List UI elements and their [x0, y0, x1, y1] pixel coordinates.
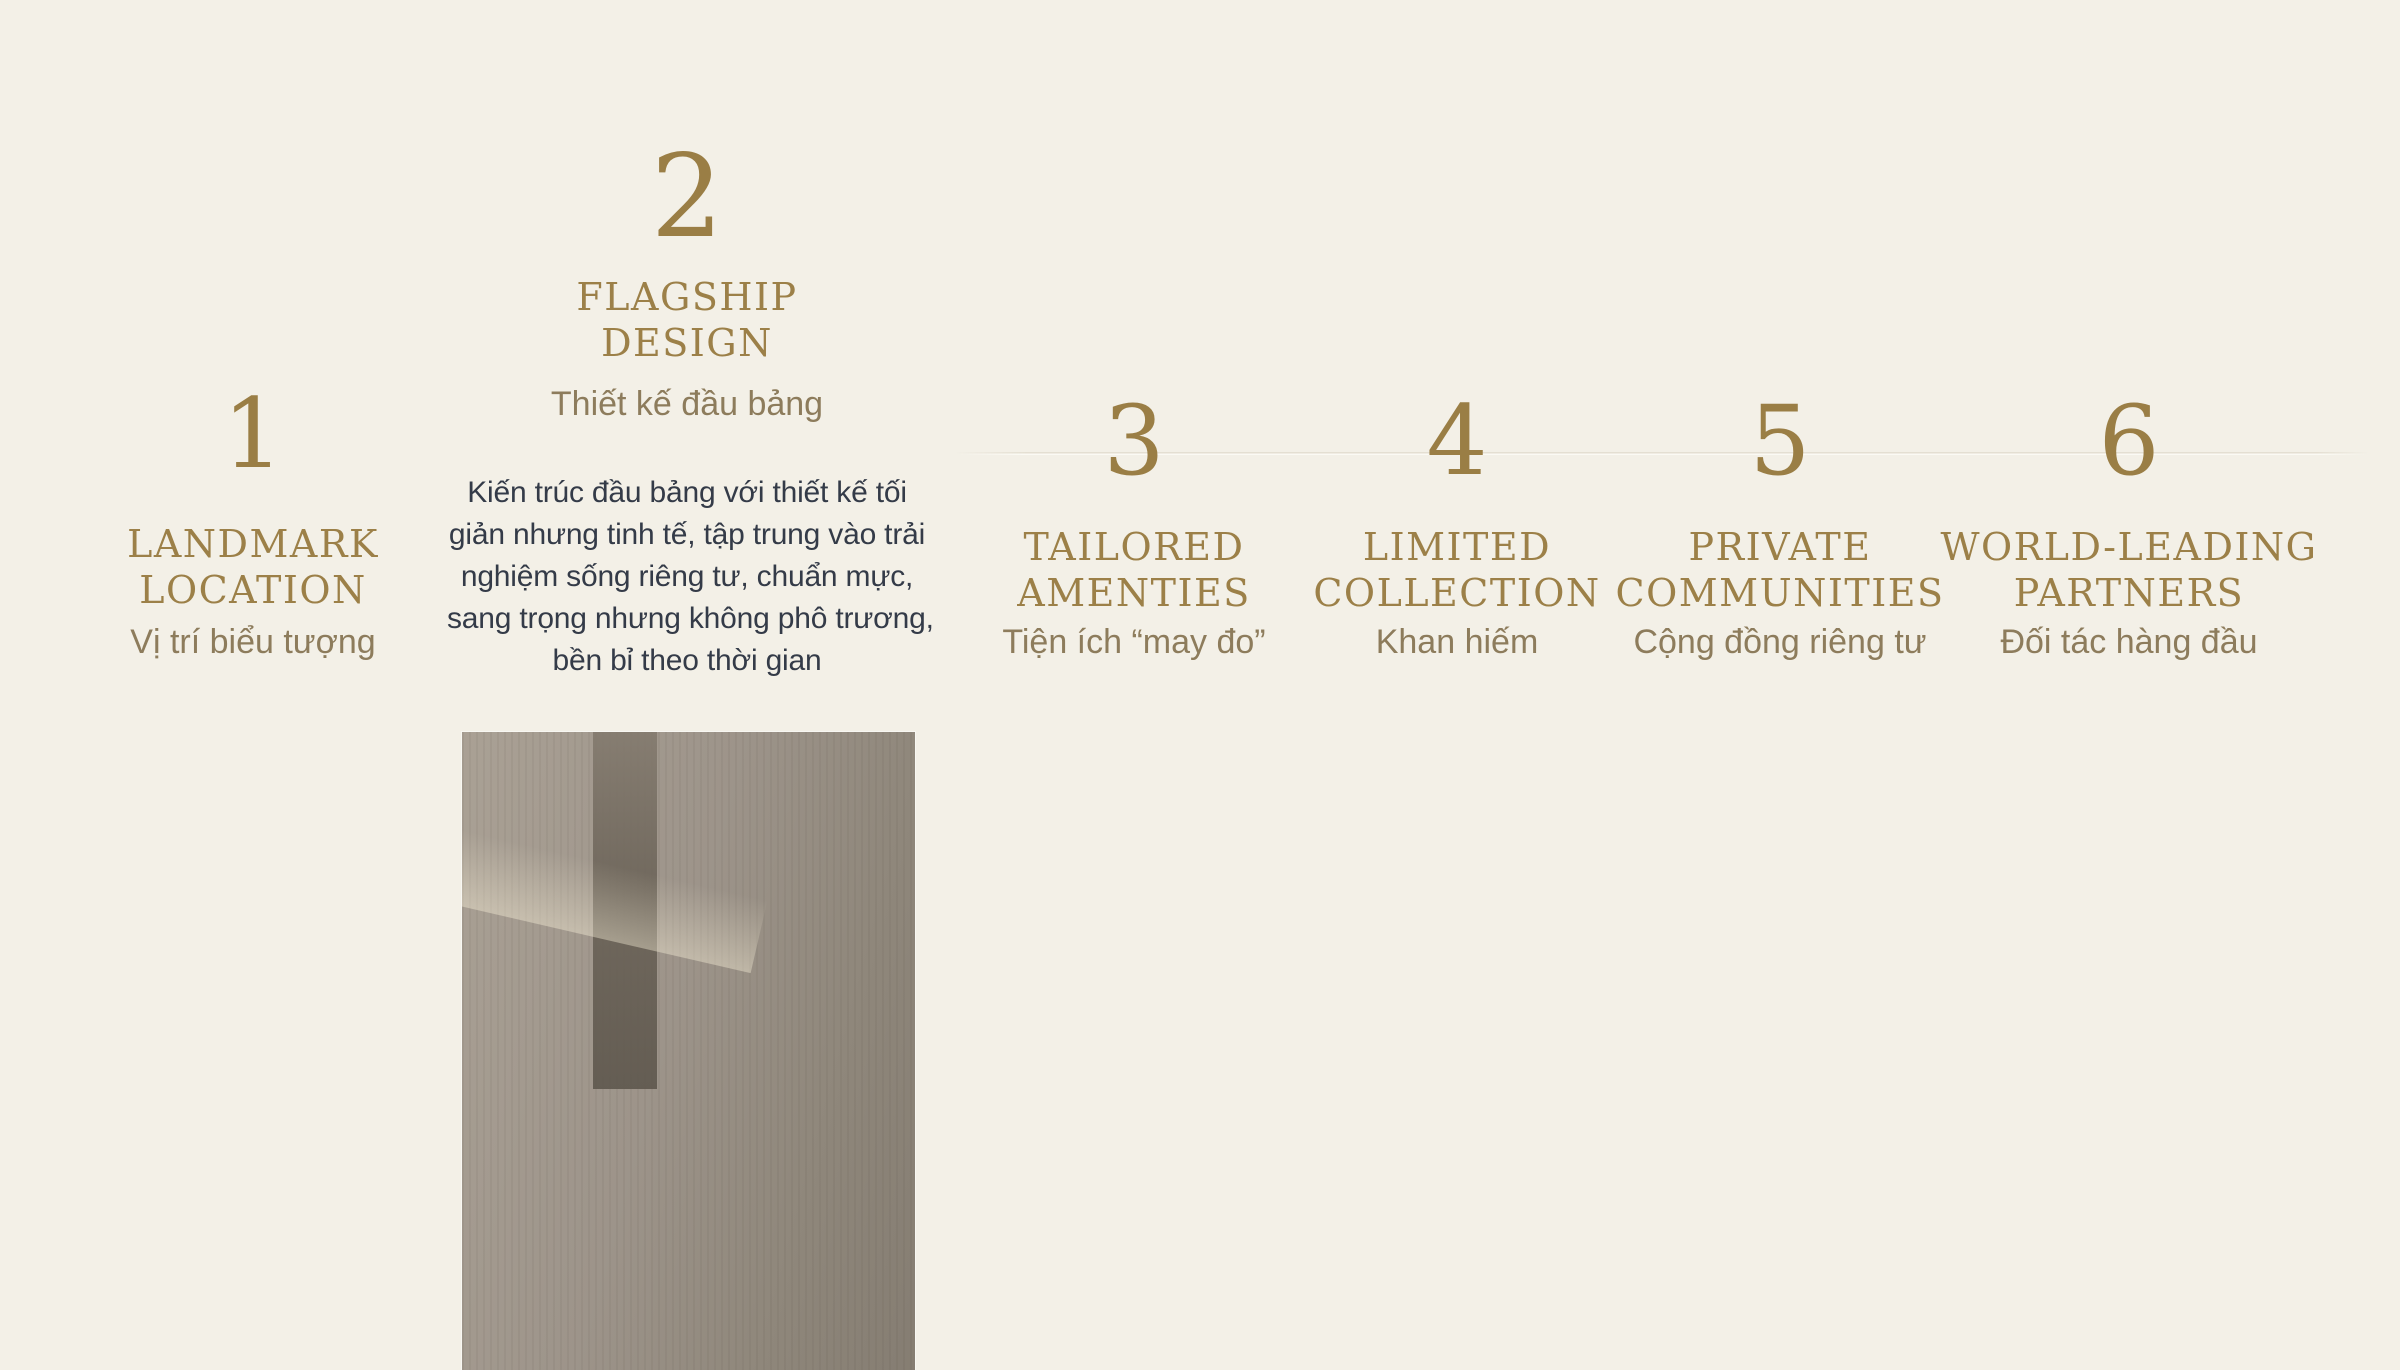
feature-2-description-line1: Kiến trúc đầu bảng với thiết kế tối	[447, 472, 927, 514]
feature-1-title-line2: LOCATION	[139, 568, 367, 612]
feature-4-title-line1: LIMITED	[1363, 525, 1551, 569]
feature-3-title-line2: AMENTIES	[1017, 571, 1250, 615]
flagship-design-photo	[462, 732, 915, 1370]
features-slide: 1 LANDMARKLOCATION Vị trí biểu tượng 2 F…	[0, 0, 2400, 1370]
feature-2-title-line2: DESIGN	[601, 321, 773, 365]
feature-1-title: LANDMARKLOCATION	[33, 522, 473, 613]
feature-6-number: 6	[1909, 393, 2349, 489]
feature-6-title-line1: WORLD-LEADING	[1940, 525, 2317, 569]
feature-1-number: 1	[33, 386, 473, 482]
feature-6-subtitle: Đối tác hàng đầu	[1909, 622, 2349, 663]
feature-1-title-line1: LANDMARK	[127, 522, 379, 566]
feature-1-subtitle: Vị trí biểu tượng	[33, 622, 473, 663]
feature-2-description-line4: sang trọng nhưng không phô trương,	[447, 598, 927, 640]
feature-2-title-line1: FLAGSHIP	[576, 275, 797, 319]
feature-2-title: FLAGSHIPDESIGN	[467, 275, 907, 366]
feature-2-description-line5: bền bỉ theo thời gian	[447, 640, 927, 682]
feature-4-title-line2: COLLECTION	[1313, 571, 1600, 615]
feature-2-description-line2: giản nhưng tinh tế, tập trung vào trải	[447, 514, 927, 556]
feature-6-title-line2: PARTNERS	[2014, 571, 2244, 615]
feature-5-title-line2: COMMUNITIES	[1616, 571, 1945, 615]
feature-5-title-line1: PRIVATE	[1688, 525, 1871, 569]
feature-2-subtitle: Thiết kế đầu bảng	[467, 384, 907, 425]
feature-2-number: 2	[467, 140, 907, 254]
feature-2-description: Kiến trúc đầu bảng với thiết kế tối giản…	[447, 472, 927, 682]
feature-6-title: WORLD-LEADINGPARTNERS	[1909, 525, 2349, 616]
feature-3-title-line1: TAILORED	[1024, 525, 1245, 569]
feature-2-description-line3: nghiệm sống riêng tư, chuẩn mực,	[447, 556, 927, 598]
